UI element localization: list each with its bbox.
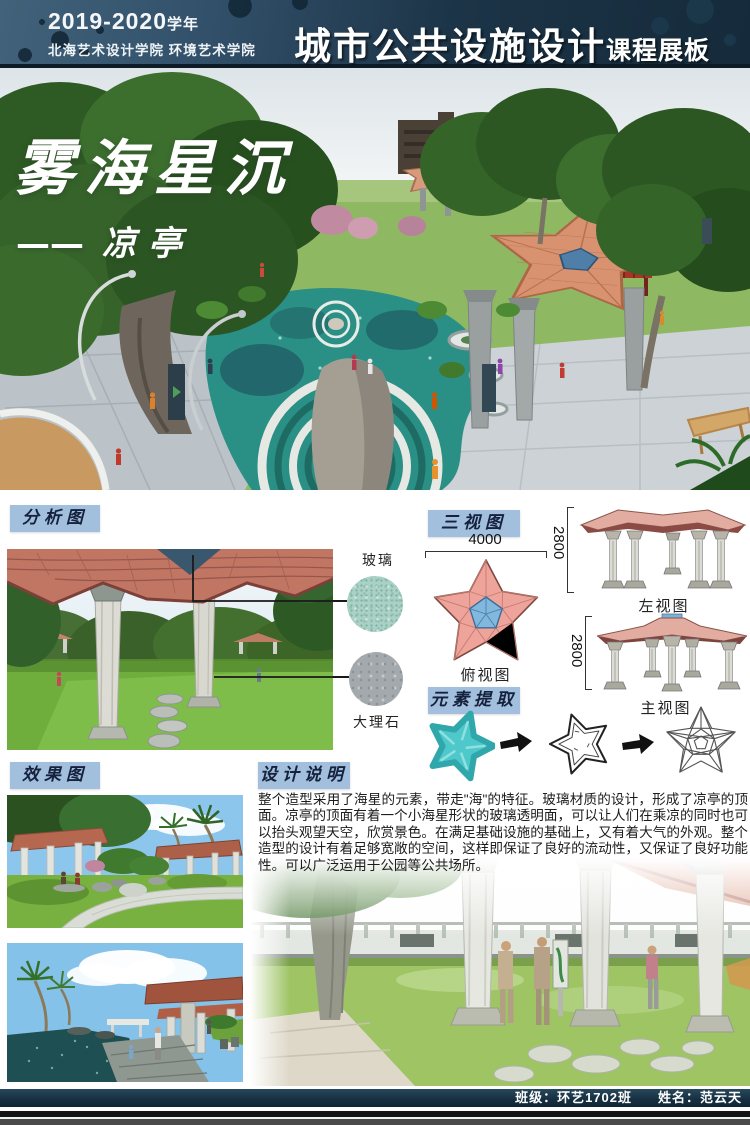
- left-view-height-dimension: 2800: [550, 526, 567, 559]
- marble-material-label: 大理石: [344, 712, 410, 732]
- subtitle-text: 凉亭: [102, 224, 194, 264]
- student-name-label: 姓名：范云天: [658, 1090, 742, 1105]
- top-view-caption: 俯视图: [450, 664, 522, 685]
- project-title: 雾海星沉: [14, 120, 294, 207]
- starfish-sketch: [542, 708, 620, 778]
- design-description-text: 整个造型采用了海星的元素，带走"海"的特征。玻璃材质的设计，形成了凉亭的顶面。凉…: [258, 792, 748, 874]
- top-view-star-diagram: [426, 556, 546, 672]
- starfish-photo: [425, 706, 495, 782]
- large-render-image: [250, 858, 750, 1086]
- left-view-dimension-bracket: [567, 507, 574, 593]
- effect-image-2: [7, 943, 243, 1082]
- effect-image-1: [7, 795, 243, 928]
- footer-bar: 班级：环艺1702班姓名：范云天: [0, 1089, 750, 1107]
- subtitle-dash: ——: [16, 224, 84, 264]
- top-view-drawing: [426, 556, 546, 672]
- marble-material-swatch: [349, 652, 403, 706]
- class-label: 班级：环艺1702班: [515, 1090, 632, 1105]
- effect-section-label: 效果图: [10, 762, 100, 789]
- main-view-drawing: [594, 610, 750, 694]
- main-view-elevation: [594, 610, 750, 694]
- left-view-drawing: [578, 503, 748, 593]
- hero-render-image: 雾海星沉 ——凉亭: [0, 68, 750, 490]
- academic-year: 2019-2020学年: [48, 8, 256, 35]
- header-banner: 2019-2020学年 北海艺术设计学院 环境艺术学院 城市公共设施设计课程展板: [0, 0, 750, 68]
- glass-callout-line: [333, 600, 347, 602]
- arrow-right-glyph: [500, 730, 534, 756]
- description-section-label: 设计说明: [258, 762, 350, 789]
- academic-year-suffix: 学年: [167, 16, 199, 33]
- analysis-pavilion-illustration: [7, 549, 333, 750]
- analysis-section-label: 分析图: [10, 505, 100, 532]
- starfish-icon: [425, 706, 495, 782]
- course-title-suffix: 课程展板: [606, 37, 710, 65]
- header-left-block: 2019-2020学年 北海艺术设计学院 环境艺术学院: [48, 8, 256, 59]
- academic-year-number: 2019-2020: [48, 8, 167, 34]
- footer-stripe-gray: [0, 1119, 750, 1125]
- marble-callout-line: [333, 676, 349, 678]
- project-subtitle: ——凉亭: [16, 216, 194, 265]
- starfish-outline-icon: [542, 708, 620, 778]
- glass-material-label: 玻璃: [352, 550, 404, 570]
- starfish-wireframe: [660, 702, 742, 780]
- arrow-right-glyph-2: [622, 730, 656, 756]
- arrow-right-icon-2: [622, 730, 656, 756]
- analysis-image: [7, 549, 333, 750]
- effect-render-2: [7, 943, 243, 1082]
- main-view-height-dimension: 2800: [568, 634, 585, 667]
- effect-render-1: [7, 795, 243, 928]
- star-wireframe-icon: [660, 702, 742, 780]
- arrow-right-icon: [500, 730, 534, 756]
- width-dimension: 4000: [460, 531, 510, 548]
- header-course-title: 城市公共设施设计课程展板: [294, 16, 710, 70]
- course-title: 城市公共设施设计: [294, 26, 606, 67]
- glass-material-swatch: [347, 576, 403, 632]
- design-board: 2019-2020学年 北海艺术设计学院 环境艺术学院 城市公共设施设计课程展板: [0, 0, 750, 1125]
- left-view-elevation: [578, 503, 748, 593]
- main-view-dimension-bracket: [585, 616, 592, 690]
- large-pavilion-render: [250, 858, 750, 1086]
- school-name: 北海艺术设计学院 环境艺术学院: [48, 39, 256, 59]
